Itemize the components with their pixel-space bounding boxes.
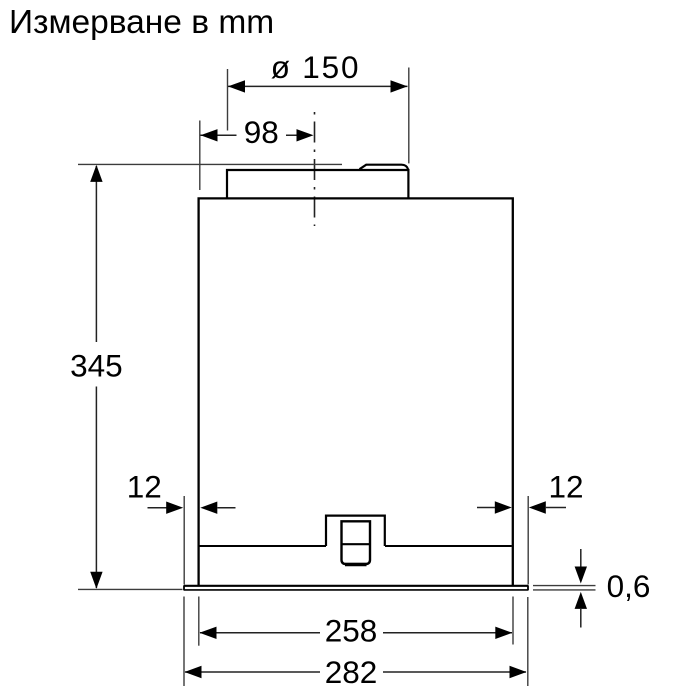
svg-text:345: 345	[70, 348, 123, 384]
svg-text:ø 150: ø 150	[271, 49, 361, 85]
svg-text:Измерване в mm: Измерване в mm	[9, 4, 274, 41]
svg-text:12: 12	[548, 469, 583, 505]
svg-text:12: 12	[127, 469, 162, 505]
svg-text:98: 98	[244, 114, 279, 150]
svg-text:282: 282	[325, 654, 378, 690]
svg-text:0,6: 0,6	[607, 568, 651, 604]
svg-text:258: 258	[325, 613, 378, 649]
